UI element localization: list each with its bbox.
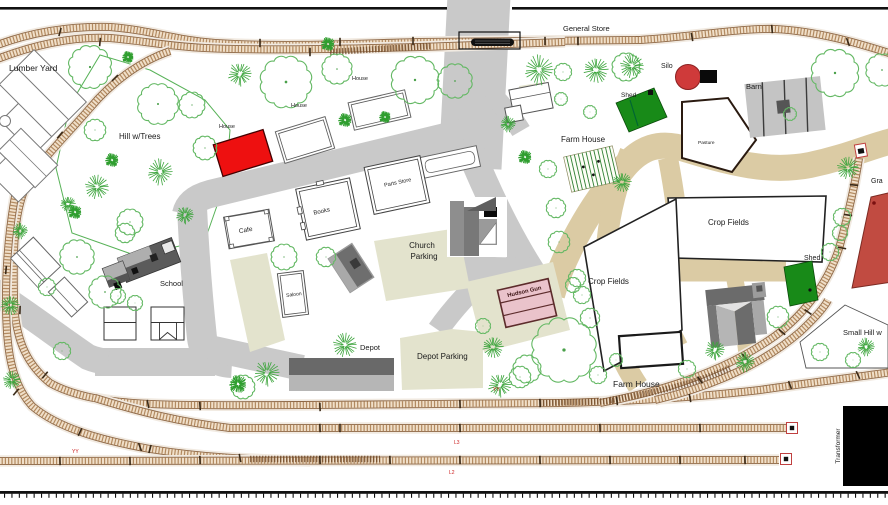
svg-text:L3: L3: [454, 440, 460, 446]
svg-text:Crop Fields: Crop Fields: [588, 277, 629, 286]
svg-text:Barn: Barn: [746, 82, 762, 91]
svg-text:Farm House: Farm House: [561, 135, 606, 144]
svg-text:Transformer: Transformer: [835, 428, 842, 464]
svg-text:Lumber Yard: Lumber Yard: [9, 63, 58, 73]
svg-text:Silo: Silo: [661, 63, 673, 70]
svg-text:L2: L2: [449, 470, 455, 476]
svg-text:Small Hill w: Small Hill w: [843, 328, 882, 337]
svg-text:General Store: General Store: [563, 24, 610, 33]
svg-text:Hill w/Trees: Hill w/Trees: [119, 132, 160, 141]
svg-text:Shed: Shed: [804, 255, 820, 262]
svg-text:Depot: Depot: [360, 343, 381, 352]
svg-text:Pasture: Pasture: [698, 140, 715, 146]
svg-text:Gra: Gra: [871, 178, 883, 185]
svg-text:School: School: [160, 279, 183, 288]
svg-text:House: House: [219, 124, 235, 130]
svg-text:Crop Fields: Crop Fields: [708, 218, 749, 227]
svg-text:Church: Church: [409, 241, 435, 250]
svg-text:Depot Parking: Depot Parking: [417, 352, 468, 361]
svg-text:YY: YY: [72, 449, 79, 455]
svg-text:Farm House: Farm House: [613, 379, 660, 389]
svg-text:Parking: Parking: [410, 252, 437, 261]
svg-text:Shed: Shed: [621, 92, 637, 99]
svg-text:House: House: [352, 76, 368, 82]
svg-text:YY: YY: [493, 387, 500, 393]
svg-text:House: House: [291, 103, 307, 109]
